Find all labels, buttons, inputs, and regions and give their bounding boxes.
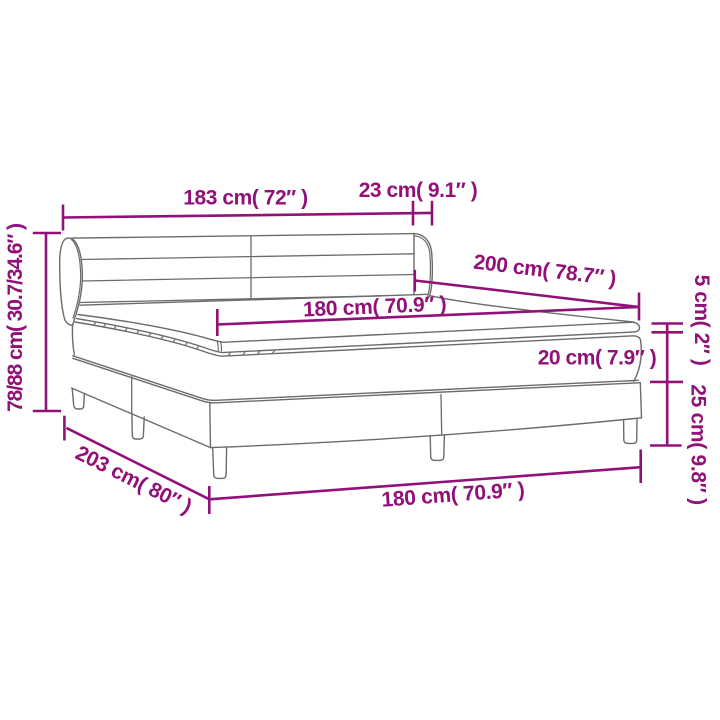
svg-text:5 cm( 2″ ): 5 cm( 2″ ) xyxy=(690,275,713,366)
svg-text:20 cm( 7.9″ ): 20 cm( 7.9″ ) xyxy=(538,347,657,370)
svg-text:23 cm( 9.1″ ): 23 cm( 9.1″ ) xyxy=(359,179,478,202)
svg-text:78/88 cm( 30.7/34.6″ ): 78/88 cm( 30.7/34.6″ ) xyxy=(4,224,27,412)
svg-text:25 cm( 9.8″ ): 25 cm( 9.8″ ) xyxy=(687,384,710,505)
svg-text:183 cm( 72″ ): 183 cm( 72″ ) xyxy=(183,187,307,210)
